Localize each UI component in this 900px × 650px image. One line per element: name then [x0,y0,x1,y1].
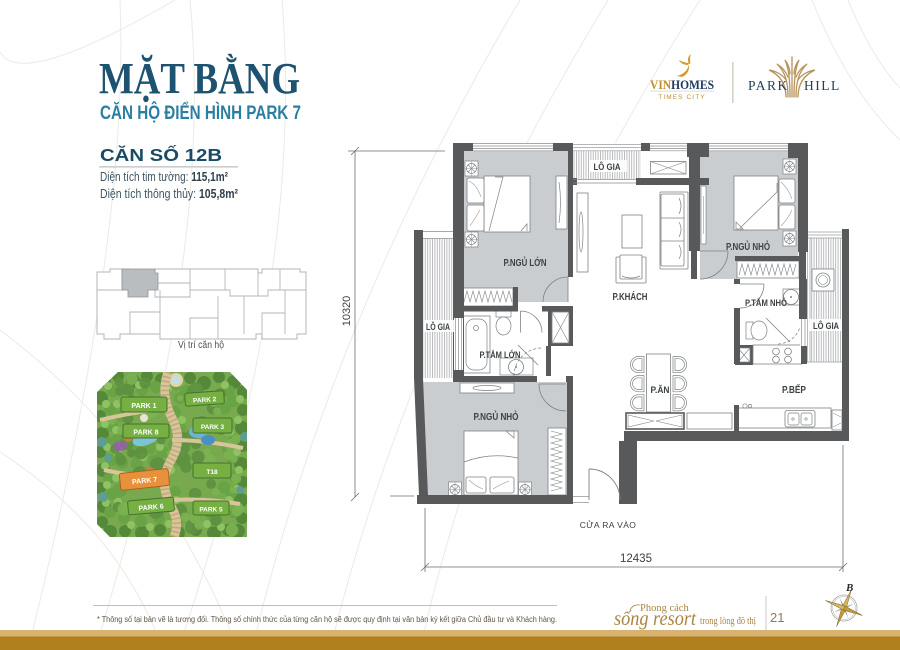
svg-text:LÔ GIA: LÔ GIA [594,161,621,173]
svg-text:P.KHÁCH: P.KHÁCH [613,290,648,303]
svg-text:HILL: HILL [804,78,841,93]
svg-text:PARK 3: PARK 3 [201,424,225,431]
svg-text:Vị trí căn hộ: Vị trí căn hộ [178,340,224,351]
svg-text:Diện tích tim tường: 115,1m²: Diện tích tim tường: 115,1m² [100,170,228,184]
svg-text:Phong cách: Phong cách [640,603,689,614]
svg-text:TIMES CITY: TIMES CITY [658,94,705,101]
svg-text:P.ĂN: P.ĂN [651,385,670,396]
svg-text:Diện tích thông thủy: 105,8m²: Diện tích thông thủy: 105,8m² [100,187,238,201]
svg-text:B: B [845,582,853,594]
svg-text:T18: T18 [206,469,218,476]
svg-text:12435: 12435 [620,553,652,565]
svg-text:LÔ GIA: LÔ GIA [813,320,839,331]
svg-text:trong lòng đô thị: trong lòng đô thị [700,616,756,627]
svg-text:P.BẾP: P.BẾP [782,383,806,396]
svg-text:10320: 10320 [341,296,353,327]
svg-text:P.NGỦ NHỎ: P.NGỦ NHỎ [474,410,519,423]
svg-text:P.NGỦ NHỎ: P.NGỦ NHỎ [726,240,770,253]
svg-text:PARK 5: PARK 5 [199,507,223,514]
svg-text:PARK 8: PARK 8 [133,430,158,437]
svg-text:CĂN HỘ ĐIỂN HÌNH PARK 7: CĂN HỘ ĐIỂN HÌNH PARK 7 [100,102,301,124]
svg-text:P.TẮM LỚN: P.TẮM LỚN [480,349,521,361]
svg-text:PARK: PARK [748,78,789,93]
svg-text:CĂN SỐ 12B: CĂN SỐ 12B [100,144,222,165]
svg-text:VINHOMES: VINHOMES [650,77,714,92]
svg-text:* Thông số tại bản vẽ là tương: * Thông số tại bản vẽ là tương đối. Thôn… [97,615,557,624]
svg-text:21: 21 [770,610,784,625]
svg-text:PARK 1: PARK 1 [131,403,156,410]
svg-text:P.TẮM NHỎ: P.TẮM NHỎ [745,297,787,309]
svg-text:CỬA RA VÀO: CỬA RA VÀO [580,519,637,530]
svg-text:LÔ GIA: LÔ GIA [426,321,450,332]
svg-text:MẶT BẰNG: MẶT BẰNG [99,53,300,103]
svg-text:P.NGỦ LỚN: P.NGỦ LỚN [504,256,547,269]
